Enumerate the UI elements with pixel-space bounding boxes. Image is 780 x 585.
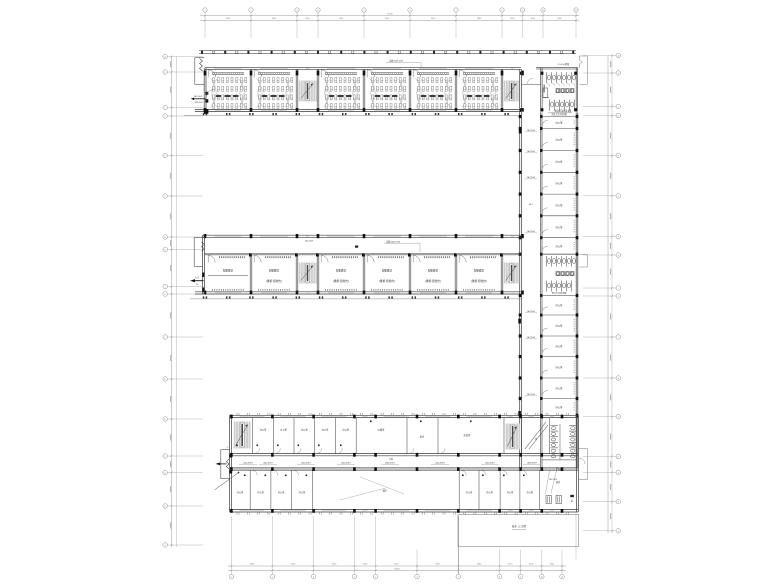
svg-text:智能教室: 智能教室	[223, 268, 234, 272]
svg-text:2A2.2kW7: 2A2.2kW7	[301, 462, 311, 465]
svg-text:2A2.2kW: 2A2.2kW	[527, 129, 535, 132]
svg-text:J: J	[165, 287, 166, 289]
svg-text:J: J	[618, 288, 619, 290]
svg-text:(教师 控制台): (教师 控制台)	[425, 279, 441, 283]
svg-text:2A2.2kW7: 2A2.2kW7	[435, 462, 445, 465]
svg-text:入口: 入口	[195, 276, 199, 279]
svg-text:餐厅: 餐厅	[383, 489, 388, 493]
svg-text:2A2.2kW: 2A2.2kW	[527, 336, 535, 339]
svg-text:42000: 42000	[394, 568, 400, 570]
svg-text:2A2.2kW7: 2A2.2kW7	[385, 462, 395, 465]
svg-text:50700: 50700	[387, 14, 393, 16]
svg-text:2A2.5kW: 2A2.5kW	[549, 478, 557, 481]
svg-text:(教师 控制台): (教师 控制台)	[333, 279, 349, 283]
svg-text:2A2.2kW: 2A2.2kW	[305, 240, 313, 243]
svg-text:2A2.2kW: 2A2.2kW	[194, 95, 202, 98]
svg-text:智能教室: 智能教室	[428, 268, 439, 272]
svg-text:2A2.2kW: 2A2.2kW	[194, 101, 202, 104]
svg-text:2A2.5kW7: 2A2.5kW7	[527, 462, 537, 465]
svg-text:2A2.2kW7: 2A2.2kW7	[263, 462, 273, 465]
svg-text:2A2.2kW7: 2A2.2kW7	[243, 462, 253, 465]
svg-text:2A2.2kW: 2A2.2kW	[527, 393, 535, 396]
svg-text:智能教室: 智能教室	[269, 268, 280, 272]
svg-text:智能教室: 智能教室	[474, 268, 485, 272]
svg-text:(教师 控制台): (教师 控制台)	[266, 279, 282, 283]
svg-text:2A2.2kW: 2A2.2kW	[527, 150, 535, 153]
svg-text:(教师 控制台): (教师 控制台)	[379, 279, 395, 283]
svg-text:(教师 控制台): (教师 控制台)	[471, 279, 487, 283]
svg-text:2A2.2kW: 2A2.2kW	[527, 230, 535, 233]
svg-text:2A2.2kW: 2A2.2kW	[527, 176, 535, 179]
svg-text:智能教室: 智能教室	[336, 268, 347, 272]
svg-text:2A2.2kW7: 2A2.2kW7	[341, 462, 351, 465]
svg-text:2A2.2kW: 2A2.2kW	[527, 310, 535, 313]
svg-text:智能教室: 智能教室	[382, 268, 393, 272]
svg-text:2A2.2kW7: 2A2.2kW7	[485, 462, 495, 465]
